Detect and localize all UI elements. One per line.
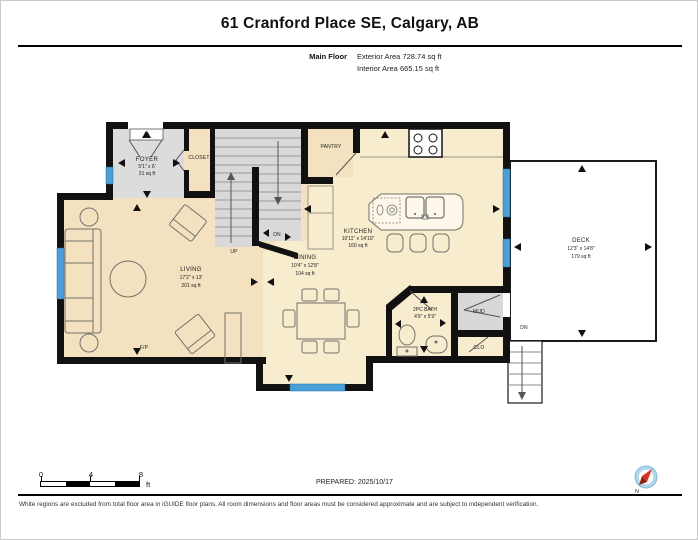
room-dims-foyer: 5'1" x 6': [138, 164, 155, 170]
scale-tickmark: [139, 476, 140, 482]
deck-structure: [508, 161, 656, 403]
room-label-clo: CLO: [474, 345, 485, 351]
room-area-kitchen: 160 sq ft: [348, 243, 368, 249]
floor-fills: [64, 129, 503, 384]
room-dims-dining: 10'4" x 12'8": [291, 263, 319, 269]
room-dims-kitchen: 10'11" x 14'10": [342, 236, 375, 242]
room-label-foyer: FOYER: [136, 157, 159, 163]
disclaimer-text: White regions are excluded from total fl…: [19, 501, 679, 508]
fireplace-label: F/P: [140, 345, 149, 351]
scale-tick-8: 8: [131, 470, 151, 479]
room-dims-deck: 12'3" x 14'8": [567, 246, 595, 252]
room-label-deck: DECK: [572, 238, 590, 244]
scale-tickmark: [41, 476, 42, 482]
room-label-mud: MUD: [473, 309, 485, 315]
scale-tickmark: [90, 476, 91, 482]
room-label-closet: CLOSET: [188, 155, 209, 161]
room-label-bath: 2PC BATH: [413, 307, 437, 313]
room-area-deck: 179 sq ft: [571, 254, 591, 260]
room-label-pantry: PANTRY: [320, 144, 341, 150]
stairs-dn-label: DN: [273, 232, 281, 238]
compass-icon: N: [631, 463, 665, 497]
room-label-kitchen: KITCHEN: [344, 229, 372, 235]
scale-segment: [66, 482, 91, 486]
scale-tick-4: 4: [81, 470, 101, 479]
scale-segment: [41, 482, 66, 486]
scale-unit: ft: [146, 480, 150, 489]
scale-segment: [90, 482, 115, 486]
room-area-living: 201 sq ft: [181, 283, 201, 289]
room-dims-living: 17'2" x 13': [180, 275, 203, 281]
footer-divider: [18, 494, 682, 496]
prepared-date: PREPARED: 2025/10/17: [316, 479, 393, 486]
floor-plan-canvas: FOYER 5'1" x 6' 31 sq ft CLOSET PANTRY K…: [1, 1, 698, 540]
room-area-dining: 104 sq ft: [295, 271, 315, 277]
deck-dn-label: DN: [520, 325, 528, 331]
room-label-dining: DINING: [294, 255, 317, 261]
scale-bar: 0 4 8: [40, 481, 140, 487]
room-label-living: LIVING: [180, 267, 202, 273]
floorplan-page: 61 Cranford Place SE, Calgary, AB Main F…: [0, 0, 698, 540]
room-dims-bath: 4'9" x 5'9": [414, 314, 436, 320]
stairs-up-label: UP: [230, 249, 238, 255]
scale-segment: [115, 482, 140, 486]
room-area-foyer: 31 sq ft: [139, 171, 156, 177]
